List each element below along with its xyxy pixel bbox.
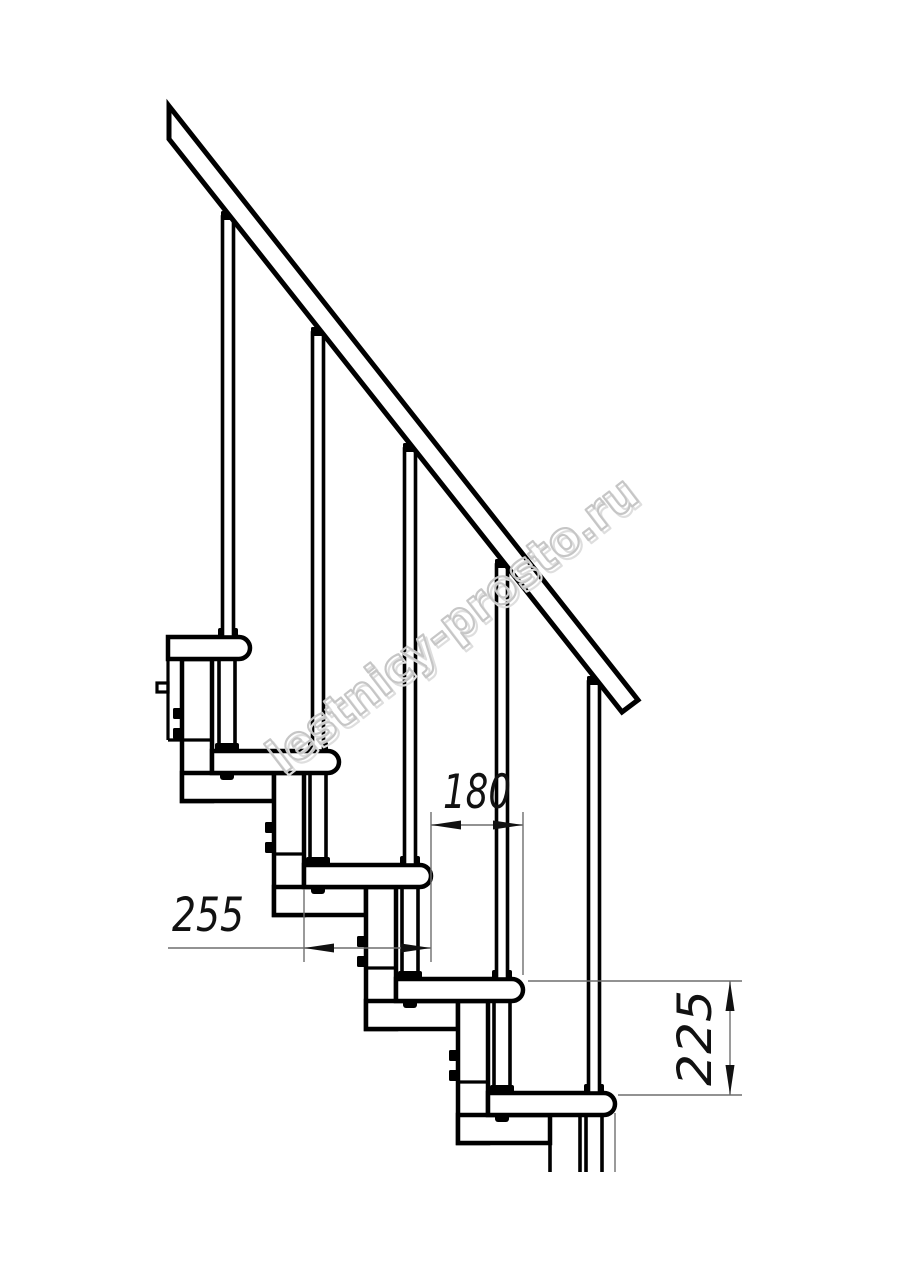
arrow-up-icon [726,981,735,1011]
baluster-3-lower [402,887,418,979]
baluster-5 [589,682,600,1093]
bolt-icon [173,728,182,739]
staircase-technical-drawing: 255 180 225 lestnicy-prosto.ru lestnicy-… [0,0,914,1280]
baluster-4-lower [494,1001,510,1093]
baluster-2 [313,333,324,751]
arrow-left-icon [431,821,461,830]
bolt-icon [265,842,274,853]
flange-icon [490,1085,514,1094]
bolt-icon [357,956,366,967]
dimension-value-255: 255 [172,888,244,943]
technical-drawing-page: 255 180 225 lestnicy-prosto.ru lestnicy-… [0,0,914,1280]
tread-3 [304,865,431,887]
tread-5 [488,1093,615,1115]
flange-icon [215,743,239,752]
arrow-down-icon [726,1065,735,1095]
upper-module-tab [157,683,168,692]
baluster-1-lower [219,659,235,751]
bolt-icon [449,1070,458,1081]
baluster-1 [223,217,234,637]
flange-icon [306,857,330,866]
dimension-rise: 225 [528,981,742,1172]
bolt-icon [449,1050,458,1061]
tread-1 [168,637,250,659]
bolt-icon [265,822,274,833]
baluster-2-lower [310,773,326,865]
tread-4 [396,979,523,1001]
flange-icon [398,971,422,980]
bolt-icon [173,708,182,719]
bolt-icon [357,936,366,947]
dimension-value-180: 180 [443,765,511,820]
dimension-value-225: 225 [668,990,723,1086]
arrow-left-icon [304,944,334,953]
